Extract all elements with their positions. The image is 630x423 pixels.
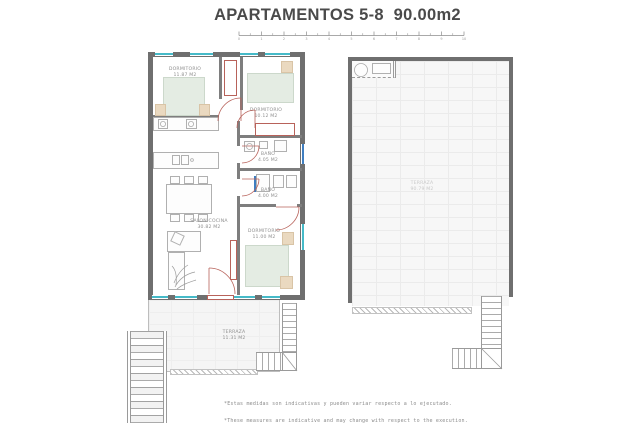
window <box>262 295 280 299</box>
plan-overlay <box>0 0 630 423</box>
wardrobe <box>230 240 237 280</box>
svg-text:8: 8 <box>418 37 420 41</box>
stairs-corner-landing <box>282 352 297 371</box>
chair <box>170 176 180 184</box>
chair <box>170 214 180 222</box>
partition <box>237 196 240 295</box>
room-area: 90.79 M2 <box>396 187 448 193</box>
window <box>175 295 197 299</box>
footnote-en: *These measures are indicative and may c… <box>224 419 468 423</box>
terrace-hatch-strip <box>170 369 258 375</box>
window <box>233 295 255 299</box>
bathroom-sink <box>244 141 255 152</box>
dining-table <box>166 184 212 214</box>
partition <box>240 204 276 207</box>
wardrobe <box>255 123 295 136</box>
wall-right <box>300 52 305 300</box>
window <box>152 295 168 299</box>
utility-cabinet <box>372 63 391 74</box>
partition <box>219 57 222 99</box>
bed <box>247 73 294 103</box>
partition <box>297 204 302 207</box>
stairs-flight-horizontal <box>256 352 282 371</box>
window <box>155 52 173 56</box>
partition <box>240 57 243 110</box>
nightstand <box>155 104 166 116</box>
room-area: 11.31 M2 <box>210 336 258 342</box>
door-arc <box>218 98 241 121</box>
room-area: 11.87 M2 <box>160 73 210 79</box>
window <box>190 52 213 56</box>
svg-text:6: 6 <box>373 37 375 41</box>
svg-text:10: 10 <box>462 37 466 41</box>
partition <box>240 168 302 171</box>
room-label-dormitorio1: DORMITORIO 11.87 M2 <box>160 67 210 79</box>
svg-text:4: 4 <box>328 37 330 41</box>
room-area: 10.12 M2 <box>242 114 290 120</box>
footnote-es: *Estas medidas son indicativas y pueden … <box>224 402 468 408</box>
bathroom-sink <box>286 175 297 188</box>
room-label-solarium: TERRAZA 90.79 M2 <box>396 181 448 193</box>
room-area: 30.82 M2 <box>184 225 234 231</box>
room-area: 4.00 M2 <box>246 194 290 200</box>
partition <box>237 121 240 146</box>
svg-text:0: 0 <box>238 37 240 41</box>
stairs-flight-vertical <box>282 303 297 352</box>
window <box>265 52 290 56</box>
svg-text:7: 7 <box>395 37 397 41</box>
terrace-door <box>207 295 234 300</box>
room-label-salon-cocina: SALON COCINA 30.82 M2 <box>184 219 234 231</box>
toilet <box>273 175 284 188</box>
nightstand <box>199 104 210 116</box>
window <box>301 144 305 164</box>
nightstand <box>280 276 293 289</box>
svg-text:5: 5 <box>350 37 352 41</box>
kitchen-appliance <box>158 119 168 129</box>
footnotes: *Estas medidas son indicativas y pueden … <box>224 391 468 423</box>
scale-ruler: 012345678910 <box>236 30 467 42</box>
sofa-body <box>168 252 185 290</box>
window <box>301 224 305 250</box>
chair <box>184 176 194 184</box>
room-label-dormitorio2: DORMITORIO 10.12 M2 <box>242 108 290 120</box>
shower <box>274 140 287 152</box>
solarium-wall-left <box>348 57 352 303</box>
partition <box>237 163 240 179</box>
room-label-terraza: TERRAZA 11.31 M2 <box>210 330 258 342</box>
stairs-flight-horizontal <box>452 348 481 369</box>
page-title: APARTAMENTOS 5-8 90.00m2 <box>170 6 505 25</box>
stairs-flight-vertical <box>481 296 502 348</box>
room-label-bano2: BAÑO 4.00 M2 <box>246 188 290 200</box>
door-arc <box>276 207 299 230</box>
solarium-hatch-strip <box>352 307 472 314</box>
window <box>240 52 258 56</box>
svg-text:9: 9 <box>440 37 442 41</box>
stairs-corner-landing <box>481 348 502 369</box>
room-area: 11.00 M2 <box>240 235 288 241</box>
svg-text:1: 1 <box>260 37 262 41</box>
nightstand <box>281 61 293 73</box>
room-label-bano1: BAÑO 4.05 M2 <box>246 152 290 164</box>
kitchen-sink <box>172 155 180 165</box>
svg-text:3: 3 <box>305 37 307 41</box>
chair <box>198 176 208 184</box>
svg-text:2: 2 <box>283 37 285 41</box>
room-area: 4.05 M2 <box>246 158 290 164</box>
toilet <box>259 141 268 149</box>
floorplan-canvas: APARTAMENTOS 5-8 90.00m2 012345678910 <box>0 0 630 423</box>
wall-left <box>148 52 153 300</box>
solarium-wall-right <box>509 57 513 297</box>
exterior-staircase <box>127 331 167 423</box>
room-label-dormitorio3: DORMITORIO 11.00 M2 <box>240 229 288 241</box>
kitchen-appliance <box>186 119 197 129</box>
wardrobe <box>224 60 237 96</box>
kitchen-sink <box>181 155 189 165</box>
